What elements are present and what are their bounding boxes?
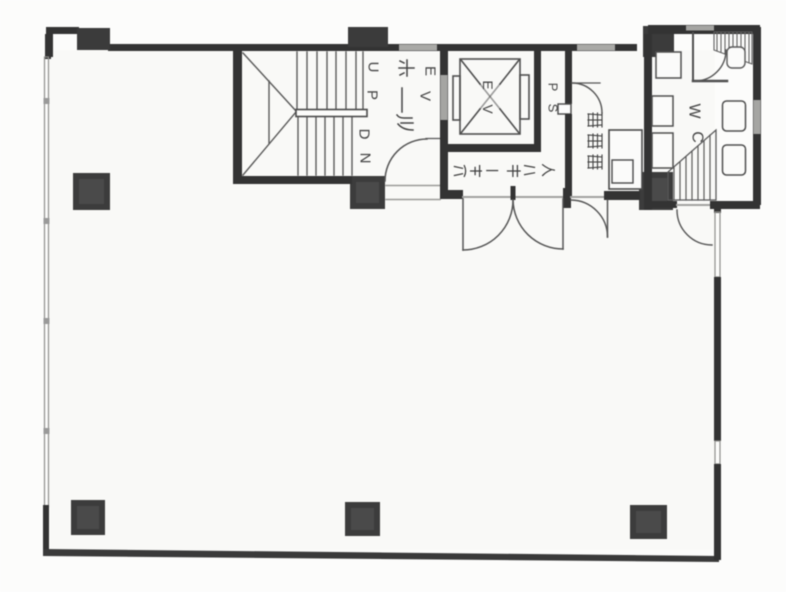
svg-text:V: V	[480, 104, 496, 114]
svg-text:E: E	[480, 80, 496, 89]
svg-text:P: P	[364, 90, 381, 100]
svg-text:E: E	[422, 66, 439, 76]
svg-text:D: D	[356, 129, 373, 140]
svg-text:N: N	[357, 153, 374, 164]
svg-text:S: S	[546, 104, 561, 113]
svg-text:W: W	[686, 103, 703, 119]
svg-text:U: U	[365, 62, 382, 73]
svg-text:C: C	[689, 131, 706, 143]
svg-text:V: V	[417, 91, 434, 101]
svg-text:P: P	[546, 83, 561, 92]
